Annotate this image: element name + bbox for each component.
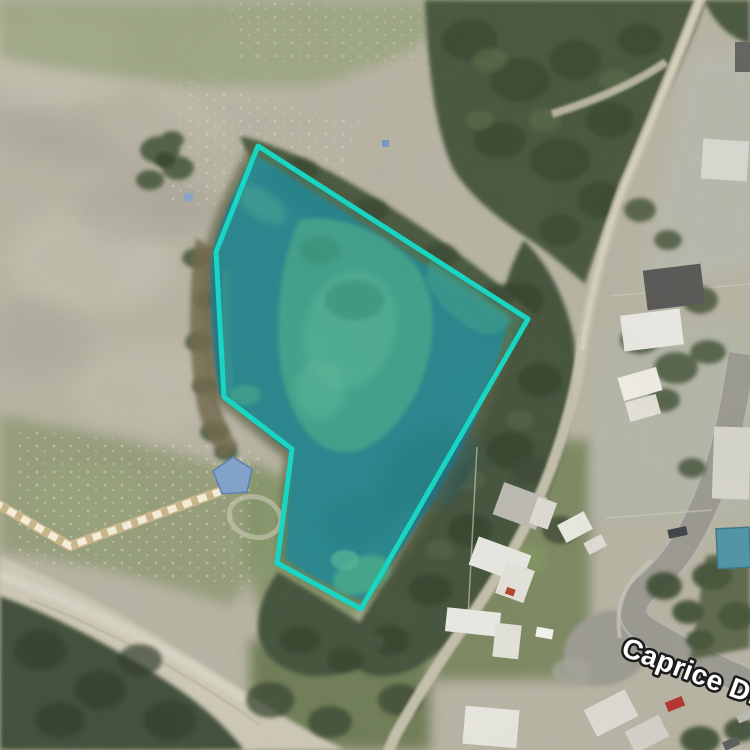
aerial-map-canvas[interactable]: Caprice Dr xyxy=(0,0,750,750)
map-viewport[interactable]: Caprice Dr xyxy=(0,0,750,750)
